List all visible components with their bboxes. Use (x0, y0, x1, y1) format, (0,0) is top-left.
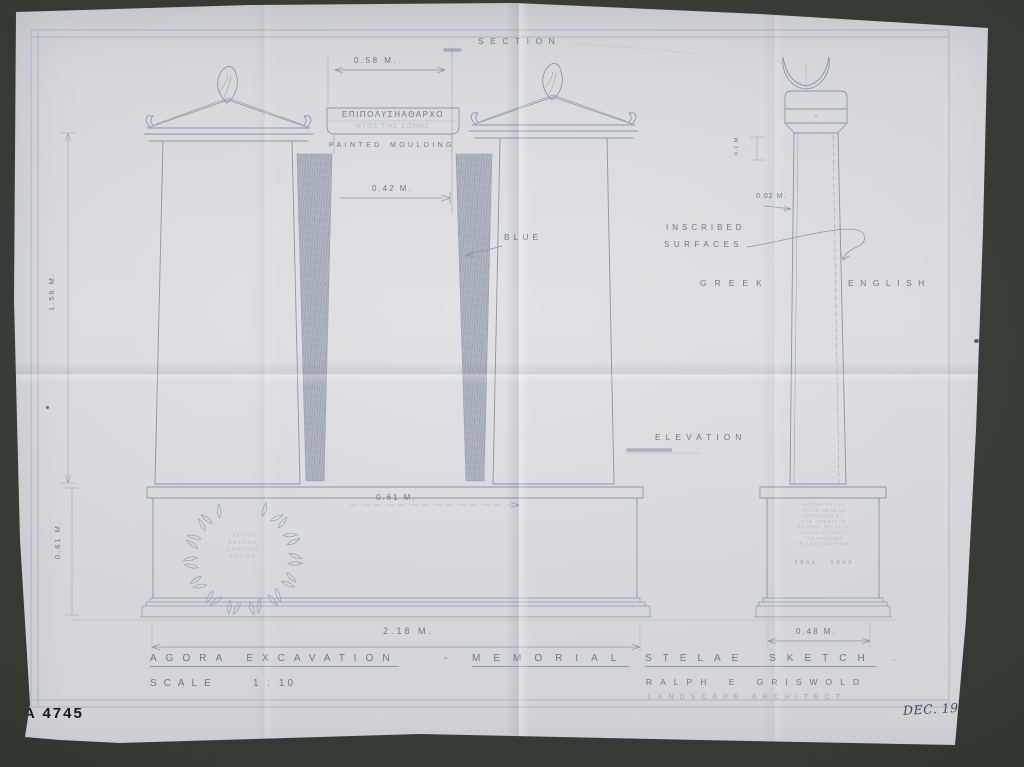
column-cap (785, 91, 847, 133)
paper-speck-right (974, 339, 979, 343)
wreath-inscription: ΙΑΣΤΠΟΕΑΕΛΝΕΕΑΗΙΣΗΝΕΡΣΙΑΩ (204, 533, 282, 561)
right-pedestal-plinth (754, 598, 892, 617)
dim-base-panel-text: 0.61 M. (376, 494, 417, 502)
wreath-leaf (232, 601, 242, 615)
dim-line-shaft-width (340, 192, 450, 204)
dim-line-shaft-height (61, 133, 75, 483)
wreath-leaf (261, 502, 268, 516)
architect-name: RALPH E GRISWOLD (646, 678, 867, 687)
pedestal-inscription: AGORA EXCAVATION RESEARFINANCED BYTHE AM… (780, 502, 868, 547)
title-part1: AGORA EXCAVATION (150, 654, 399, 667)
inscribed-label-line1: INSCRIBED (666, 224, 746, 232)
column-shaft-edges (790, 133, 846, 484)
left-stele-shaft (155, 141, 300, 484)
wreath-leaf (283, 533, 297, 538)
blue-label: BLUE (504, 233, 542, 242)
pencil-linework (0, 0, 1024, 767)
inscription-line: IN CONTINUATION (780, 541, 868, 547)
dim-base-total-text: 2.18 M. (383, 627, 434, 636)
wreath-leaf (183, 555, 197, 562)
centre-stele-shaft (493, 138, 614, 484)
wreath-leaf (277, 516, 288, 529)
inscribed-surfaces-leader (747, 229, 865, 260)
catalog-number: A 4745 (24, 706, 84, 721)
wreath-leaf (266, 594, 278, 606)
cap-center-dot (815, 115, 817, 117)
border-lines (31, 30, 949, 707)
painted-moulding-label: PAINTED MOULDING (329, 142, 455, 149)
title-part2: MEMORIAL (472, 654, 629, 667)
wreath-leaf (217, 504, 222, 518)
dim-shaft-width-text: 0.42 M. (372, 185, 413, 193)
inscription-line: ΕΡΣΙΑΩ (204, 554, 282, 561)
drawing-sheet: SECTION 0.58 M. ΕΠΙΠΟΛΥΣΗΑΘΑΡΧΟ ΝΤΟΣ ΤΗΣ… (0, 0, 1024, 767)
moulding-greek-inscription-faint: ΝΤΟΣ ΤΗΣ ΣΩΝΗΣ (330, 123, 456, 130)
wreath-leaf (287, 537, 301, 547)
wreath-leaf (184, 563, 198, 569)
column-inscribed-face-greek (794, 133, 798, 484)
pedestal-dates: 1951 · 1953 (781, 560, 867, 566)
wreath-leaf (248, 601, 256, 615)
blue-section-bar-right (456, 154, 492, 481)
inscription-line: ΕΑΕΛΝΕ (204, 540, 282, 547)
inscription-line: ΙΑΣΤΠΟ (204, 533, 282, 540)
column-inscribed-face-english (833, 135, 839, 484)
dim-line-base-total (152, 644, 640, 650)
dim-cap-height-text: 0.1 M. (735, 134, 741, 155)
inscribed-label-line2: SURFACES (664, 241, 743, 249)
architect-title: LANDSCAPE ARCHITECT (648, 694, 846, 701)
elevation-view-label: ELEVATION (655, 433, 746, 442)
dim-base-height-text: 0.61 M. (54, 520, 62, 559)
dim-pedestal-text: 0.48 M. (796, 628, 837, 636)
moulding-greek-inscription: ΕΠΙΠΟΛΥΣΗΑΘΑΡΧΟ (330, 111, 456, 119)
desk-background: SECTION 0.58 M. ΕΠΙΠΟΛΥΣΗΑΘΑΡΧΟ ΝΤΟΣ ΤΗΣ… (0, 0, 1024, 767)
dim-cap-width-text: 0.58 M. (354, 57, 398, 65)
dim-line-cap-height (750, 137, 764, 160)
date-note-handwritten: DEC. 1953 (903, 701, 976, 717)
dim-line-cap-width (335, 68, 445, 73)
wreath-leaf (288, 552, 302, 560)
greek-face-label: GREEK (700, 279, 770, 288)
left-base-plinth (140, 598, 651, 617)
drawing-group (31, 30, 949, 707)
paper-speck-left (46, 406, 49, 409)
wreath-leaf (193, 583, 207, 590)
section-leader-dots (574, 44, 700, 54)
wreath-leaf (288, 561, 302, 565)
dim-line-base-height (65, 488, 79, 615)
wreath-leaf (185, 539, 198, 550)
depth-leader-arrow (764, 206, 791, 211)
section-view-label: SECTION (478, 37, 561, 46)
dim-shaft-height-text: 1.56 M. (48, 272, 56, 311)
wreath-leaf (187, 534, 201, 540)
inscription-line: ΕΑΗΙΣΗΝ (204, 547, 282, 554)
title-period: . (893, 654, 896, 664)
wreath-leaf (200, 514, 213, 525)
dim-line-pedestal (768, 638, 870, 644)
scale-value: 1 : 10 (253, 679, 296, 689)
left-stele-pediment (144, 66, 313, 141)
title-separator: - (444, 654, 447, 664)
centre-stele-pediment (469, 63, 638, 138)
dim-depth-text: 0.02 M. (756, 193, 786, 200)
scale-label: SCALE (150, 679, 218, 689)
english-face-label: ENGLISH (848, 279, 931, 288)
blue-section-bar-left (297, 154, 332, 481)
title-part3: STELAE SKETCH (645, 654, 876, 667)
